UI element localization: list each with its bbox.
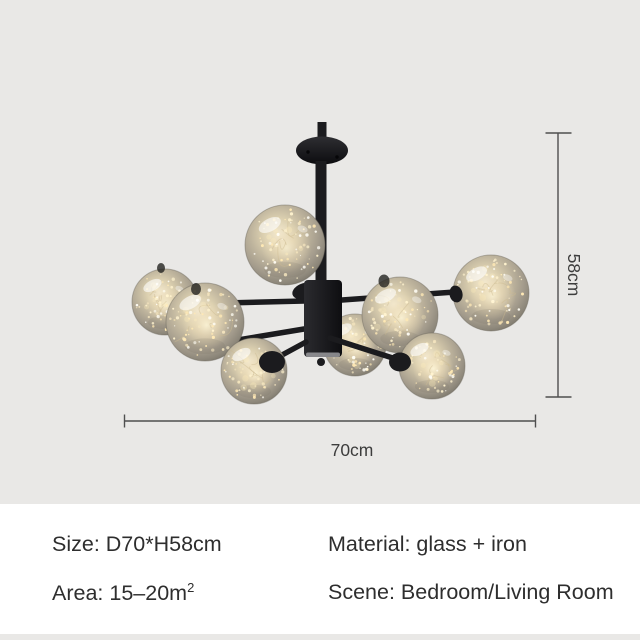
- sparkle-dot: [174, 325, 175, 326]
- sparkle-dot: [286, 258, 289, 261]
- sparkle-dot: [222, 348, 225, 351]
- sparkle-dot: [427, 388, 430, 391]
- sparkle-dot: [274, 268, 277, 271]
- sparkle-dot: [383, 320, 386, 323]
- sparkle-dot: [243, 387, 245, 389]
- sparkle-dot: [479, 304, 482, 307]
- sparkle-dot: [166, 294, 169, 297]
- globe-socket: [259, 351, 285, 373]
- glow-dot: [200, 302, 206, 308]
- sparkle-dot: [156, 312, 159, 315]
- sparkle-dot: [378, 308, 381, 311]
- sparkle-dot: [267, 263, 269, 265]
- sparkle-dot: [205, 345, 207, 347]
- sparkle-dot: [429, 375, 432, 378]
- sparkle-dot: [481, 291, 483, 293]
- sparkle-dot: [217, 311, 219, 313]
- sparkle-dot: [156, 296, 158, 298]
- globe-neck-opening: [379, 275, 390, 288]
- sparkle-dot: [180, 315, 182, 317]
- sparkle-dot: [225, 322, 227, 324]
- globe-neck-opening: [157, 263, 165, 273]
- sparkle-dot: [145, 305, 147, 307]
- sparkle-dot: [172, 308, 174, 310]
- sparkle-dot: [185, 334, 187, 336]
- sparkle-dot: [394, 328, 397, 331]
- sparkle-dot: [458, 280, 461, 283]
- sparkle-dot: [261, 244, 264, 247]
- sparkle-dot: [211, 349, 214, 352]
- chandelier: [132, 122, 529, 404]
- sparkle-dot: [213, 323, 216, 326]
- sparkle-dot: [496, 301, 498, 303]
- sparkle-dot: [316, 255, 318, 257]
- sparkle-dot: [370, 311, 372, 313]
- glow-dot: [421, 363, 426, 368]
- sparkle-dot: [475, 306, 477, 308]
- sparkle-dot: [398, 334, 401, 337]
- sparkle-dot: [262, 382, 265, 385]
- sparkle-dot: [388, 324, 390, 326]
- sparkle-dot: [496, 262, 498, 264]
- sparkle-dot: [493, 260, 495, 262]
- sparkle-dot: [300, 255, 301, 256]
- sparkle-dot: [286, 228, 287, 229]
- sparkle-dot: [362, 368, 365, 371]
- sparkle-dot: [355, 340, 357, 342]
- sparkle-dot: [176, 316, 179, 319]
- sparkle-dot: [299, 234, 302, 237]
- sparkle-dot: [418, 373, 421, 376]
- sparkle-dot: [198, 341, 199, 342]
- sparkle-dot: [438, 381, 440, 383]
- sparkle-dot: [199, 348, 202, 351]
- sparkle-dot: [173, 319, 175, 321]
- sparkle-dot: [350, 330, 353, 333]
- sparkle-dot: [180, 281, 182, 283]
- sparkle-dot: [273, 261, 276, 264]
- sparkle-dot: [506, 321, 509, 324]
- sparkle-dot: [194, 319, 197, 322]
- sparkle-dot: [433, 377, 434, 378]
- glow-dot: [242, 375, 248, 381]
- sparkle-dot: [272, 259, 275, 262]
- sparkle-dot: [185, 314, 187, 316]
- sparkle-dot: [178, 311, 179, 312]
- sparkle-dot: [279, 279, 282, 282]
- sparkle-dot: [232, 363, 234, 365]
- sparkle-dot: [359, 368, 360, 369]
- sparkle-dot: [497, 282, 499, 284]
- sparkle-dot: [486, 315, 488, 317]
- sparkle-dot: [381, 315, 384, 318]
- sparkle-dot: [479, 293, 481, 295]
- sparkle-dot: [369, 363, 371, 365]
- spec-scene: Scene: Bedroom/Living Room: [328, 580, 614, 605]
- sparkle-dot: [207, 294, 209, 296]
- sparkle-dot: [235, 389, 238, 392]
- sparkle-dot: [352, 361, 355, 364]
- sparkle-dot: [159, 304, 162, 307]
- sparkle-dot: [186, 329, 188, 331]
- sparkle-dot: [164, 315, 166, 317]
- sparkle-dot: [354, 360, 357, 363]
- sparkle-dot: [265, 267, 268, 270]
- sparkle-dot: [417, 309, 418, 310]
- sparkle-dot: [521, 292, 524, 295]
- sparkle-dot: [208, 289, 211, 292]
- sparkle-dot: [277, 233, 280, 236]
- sparkle-dot: [284, 273, 287, 276]
- sparkle-dot: [232, 320, 233, 321]
- sparkle-dot: [269, 242, 272, 245]
- width-dimension-label: 70cm: [331, 440, 374, 460]
- sparkle-dot: [269, 248, 272, 251]
- sparkle-dot: [208, 316, 211, 319]
- sparkle-dot: [465, 310, 467, 312]
- glow-dot: [266, 234, 271, 239]
- sparkle-dot: [153, 296, 155, 298]
- sparkle-dot: [236, 309, 238, 311]
- sparkle-dot: [372, 358, 374, 360]
- sparkle-dot: [399, 326, 401, 328]
- sparkle-dot: [307, 216, 310, 219]
- sparkle-dot: [371, 307, 374, 310]
- product-listing-image: 58cm 70cm Size: D70*H58cm Material: glas…: [0, 0, 640, 640]
- sparkle-dot: [235, 319, 237, 321]
- sparkle-dot: [405, 318, 408, 321]
- sparkle-dot: [305, 233, 308, 236]
- sparkle-dot: [193, 341, 196, 344]
- sparkle-dot: [501, 274, 503, 276]
- sparkle-dot: [505, 305, 507, 307]
- glow-dot: [271, 374, 276, 379]
- sparkle-dot: [280, 259, 283, 262]
- sparkle-dot: [290, 212, 293, 215]
- sparkle-dot: [295, 248, 297, 250]
- sparkle-dot: [159, 301, 162, 304]
- sparkle-dot: [196, 354, 198, 356]
- sparkle-dot: [248, 389, 251, 392]
- sparkle-dot: [352, 322, 355, 325]
- sparkle-dot: [258, 348, 260, 350]
- sparkle-dot: [146, 278, 148, 280]
- sparkle-dot: [424, 307, 425, 308]
- sparkle-dot: [170, 295, 172, 297]
- sparkle-dot: [402, 283, 404, 285]
- sparkle-dot: [237, 381, 240, 384]
- sparkle-dot: [258, 221, 260, 223]
- sparkle-dot: [358, 362, 361, 365]
- sparkle-dot: [259, 238, 260, 239]
- sparkle-dot: [440, 361, 442, 363]
- sparkle-dot: [229, 319, 231, 321]
- sparkle-dot: [281, 370, 284, 373]
- sparkle-dot: [148, 316, 150, 318]
- sparkle-dot: [227, 327, 229, 329]
- sparkle-dot: [349, 317, 352, 320]
- sparkle-dot: [282, 239, 283, 240]
- sparkle-dot: [367, 354, 369, 356]
- sparkle-dot: [375, 332, 377, 334]
- sparkle-dot: [254, 385, 256, 387]
- sparkle-dot: [469, 303, 472, 306]
- sparkle-dot: [183, 338, 186, 341]
- sparkle-dot: [405, 301, 408, 304]
- sparkle-dot: [290, 222, 291, 223]
- height-dimension-label: 58cm: [564, 254, 584, 297]
- sparkle-dot: [474, 315, 476, 317]
- sparkle-dot: [157, 315, 160, 318]
- sparkle-dot: [240, 366, 241, 367]
- sparkle-dot: [298, 222, 301, 225]
- sparkle-dot: [352, 333, 354, 335]
- sparkle-dot: [431, 372, 434, 375]
- sparkle-dot: [372, 318, 375, 321]
- sparkle-dot: [291, 219, 292, 220]
- sparkle-dot: [384, 313, 387, 316]
- globe-socket: [389, 353, 411, 372]
- sparkle-dot: [352, 371, 354, 373]
- sparkle-dot: [219, 293, 222, 296]
- sparkle-dot: [260, 240, 262, 242]
- sparkle-dot: [265, 351, 267, 353]
- sparkle-dot: [436, 370, 438, 372]
- globe-bottom-shade: [185, 338, 226, 354]
- sparkle-dot: [212, 325, 214, 327]
- sparkle-dot: [434, 387, 436, 389]
- sparkle-dot: [434, 355, 435, 356]
- sparkle-dot: [441, 390, 444, 393]
- sparkle-dot: [167, 285, 169, 287]
- sparkle-dot: [445, 390, 446, 391]
- sparkle-dot: [278, 379, 280, 381]
- sparkle-dot: [476, 287, 478, 289]
- sparkle-dot: [194, 313, 196, 315]
- sparkle-dot: [443, 384, 445, 386]
- sparkle-dot: [234, 369, 236, 371]
- sparkle-dot: [365, 362, 366, 363]
- sparkle-dot: [150, 311, 152, 313]
- sparkle-dot: [260, 395, 261, 396]
- sparkle-dot: [398, 289, 401, 292]
- sparkle-dot: [376, 329, 379, 332]
- sparkle-dot: [219, 314, 222, 317]
- sparkle-dot: [405, 311, 407, 313]
- sparkle-dot: [303, 266, 306, 269]
- width-dimension: 70cm: [125, 415, 536, 461]
- sparkle-dot: [356, 318, 357, 319]
- sparkle-dot: [185, 344, 188, 347]
- sparkle-dot: [493, 268, 495, 270]
- sparkle-dot: [285, 252, 288, 255]
- sparkle-dot: [450, 380, 452, 382]
- sparkle-dot: [414, 289, 417, 292]
- sparkle-dot: [222, 294, 224, 296]
- sparkle-dot: [509, 281, 512, 284]
- sparkle-dot: [506, 310, 507, 311]
- sparkle-dot: [169, 317, 172, 320]
- sparkle-dot: [352, 363, 355, 366]
- sparkle-dot: [188, 334, 190, 336]
- sparkle-dot: [198, 325, 201, 328]
- globe-bottom-shade: [471, 309, 511, 324]
- globe-neck-opening: [191, 283, 201, 295]
- sparkle-dot: [367, 366, 369, 368]
- sparkle-dot: [211, 333, 213, 335]
- sparkle-dot: [371, 299, 373, 301]
- sparkle-dot: [228, 355, 230, 357]
- canopy-screw: [335, 155, 338, 158]
- sparkle-dot: [254, 376, 255, 377]
- sparkle-dot: [373, 321, 376, 324]
- sparkle-dot: [347, 359, 349, 361]
- sparkle-dot: [518, 308, 520, 310]
- sparkle-dot: [407, 332, 410, 335]
- sparkle-dot: [276, 243, 278, 245]
- sparkle-dot: [488, 322, 491, 325]
- sparkle-dot: [166, 305, 167, 306]
- sparkle-dot: [263, 371, 265, 373]
- sparkle-dot: [163, 290, 166, 293]
- sparkle-dot: [209, 306, 211, 308]
- sparkle-dot: [191, 328, 193, 330]
- sparkle-dot: [390, 340, 393, 343]
- sparkle-dot: [424, 357, 427, 360]
- sparkle-dot: [419, 388, 421, 390]
- sparkle-dot: [253, 396, 256, 399]
- sparkle-dot: [254, 253, 256, 255]
- sparkle-dot: [208, 304, 209, 305]
- sparkle-dot: [436, 389, 439, 392]
- sparkle-dot: [437, 359, 439, 361]
- sparkle-dot: [433, 340, 436, 343]
- sparkle-dot: [309, 258, 310, 259]
- sparkle-dot: [394, 321, 396, 323]
- sparkle-dot: [491, 300, 494, 303]
- sparkle-dot: [352, 356, 355, 359]
- sparkle-dot: [304, 218, 305, 219]
- sparkle-dot: [295, 233, 297, 235]
- sparkle-dot: [160, 274, 161, 275]
- sparkle-dot: [455, 365, 457, 367]
- sparkle-dot: [160, 312, 162, 314]
- sparkle-dot: [160, 318, 162, 320]
- sparkle-dot: [284, 229, 287, 232]
- sparkle-dot: [188, 318, 190, 320]
- sparkle-dot: [390, 283, 393, 286]
- sparkle-dot: [289, 264, 291, 266]
- sparkle-dot: [421, 293, 424, 296]
- sparkle-dot: [392, 337, 393, 338]
- sparkle-dot: [364, 342, 366, 344]
- sparkle-dot: [301, 268, 303, 270]
- sparkle-dot: [351, 368, 353, 370]
- sparkle-dot: [308, 225, 311, 228]
- sparkle-dot: [485, 288, 487, 290]
- sparkle-dot: [229, 376, 231, 378]
- sparkle-dot: [400, 307, 403, 310]
- sparkle-dot: [296, 258, 297, 259]
- sparkle-dot: [313, 224, 316, 227]
- hub-finial: [317, 358, 325, 366]
- sparkle-dot: [430, 347, 432, 349]
- sparkle-dot: [400, 281, 402, 283]
- sparkle-dot: [207, 309, 210, 312]
- sparkle-dot: [456, 356, 458, 358]
- sparkle-dot: [397, 305, 399, 307]
- sparkle-dot: [315, 230, 317, 232]
- glow-dot: [433, 350, 440, 357]
- sparkle-dot: [138, 306, 140, 308]
- canopy-screw: [306, 150, 309, 153]
- sparkle-dot: [262, 260, 264, 262]
- sparkle-dot: [228, 296, 230, 298]
- sparkle-dot: [504, 263, 507, 266]
- sparkle-dot: [234, 324, 237, 327]
- sparkle-dot: [336, 364, 337, 365]
- sparkle-dot: [136, 307, 138, 309]
- chandelier-dimension-illustration: 58cm 70cm: [0, 0, 640, 504]
- sparkle-dot: [430, 300, 431, 301]
- spec-area-superscript: 2: [187, 580, 194, 595]
- sparkle-dot: [279, 272, 280, 273]
- sparkle-dot: [363, 333, 365, 335]
- sparkle-dot: [426, 363, 428, 365]
- sparkle-dot: [289, 208, 292, 211]
- sparkle-dot: [504, 280, 505, 281]
- sparkle-dot: [202, 313, 204, 315]
- sparkle-dot: [463, 273, 465, 275]
- sparkle-dot: [456, 367, 459, 370]
- sparkle-dot: [392, 343, 395, 346]
- sparkle-dot: [296, 251, 298, 253]
- sparkle-dot: [416, 382, 417, 383]
- sparkle-dot: [489, 310, 491, 312]
- sparkle-dot: [508, 297, 510, 299]
- spec-material: Material: glass + iron: [328, 532, 527, 557]
- sparkle-dot: [496, 276, 499, 279]
- glow-dot: [421, 315, 426, 320]
- glow-dot: [270, 238, 276, 244]
- sparkle-dot: [371, 325, 373, 327]
- sparkle-dot: [390, 313, 393, 316]
- sparkle-dot: [236, 394, 238, 396]
- sparkle-dot: [371, 327, 374, 330]
- sparkle-dot: [312, 267, 314, 269]
- sparkle-dot: [406, 329, 408, 331]
- sparkle-dot: [231, 377, 234, 380]
- sparkle-dot: [521, 279, 523, 281]
- sparkle-dot: [488, 287, 490, 289]
- sparkle-dot: [162, 281, 164, 283]
- sparkle-dot: [498, 321, 501, 324]
- sparkle-dot: [451, 370, 453, 372]
- glow-dot: [471, 288, 476, 293]
- sparkle-dot: [492, 263, 495, 266]
- sparkle-dot: [486, 266, 488, 268]
- sparkle-dot: [425, 321, 427, 323]
- sparkle-dot: [238, 389, 240, 391]
- sparkle-dot: [469, 317, 472, 320]
- sparkle-dot: [493, 290, 496, 293]
- sparkle-dot: [224, 369, 226, 371]
- sparkle-dot: [458, 358, 461, 361]
- sparkle-dot: [233, 362, 235, 364]
- sparkle-dot: [222, 331, 225, 334]
- sparkle-dot: [212, 330, 214, 332]
- sparkle-dot: [152, 322, 155, 325]
